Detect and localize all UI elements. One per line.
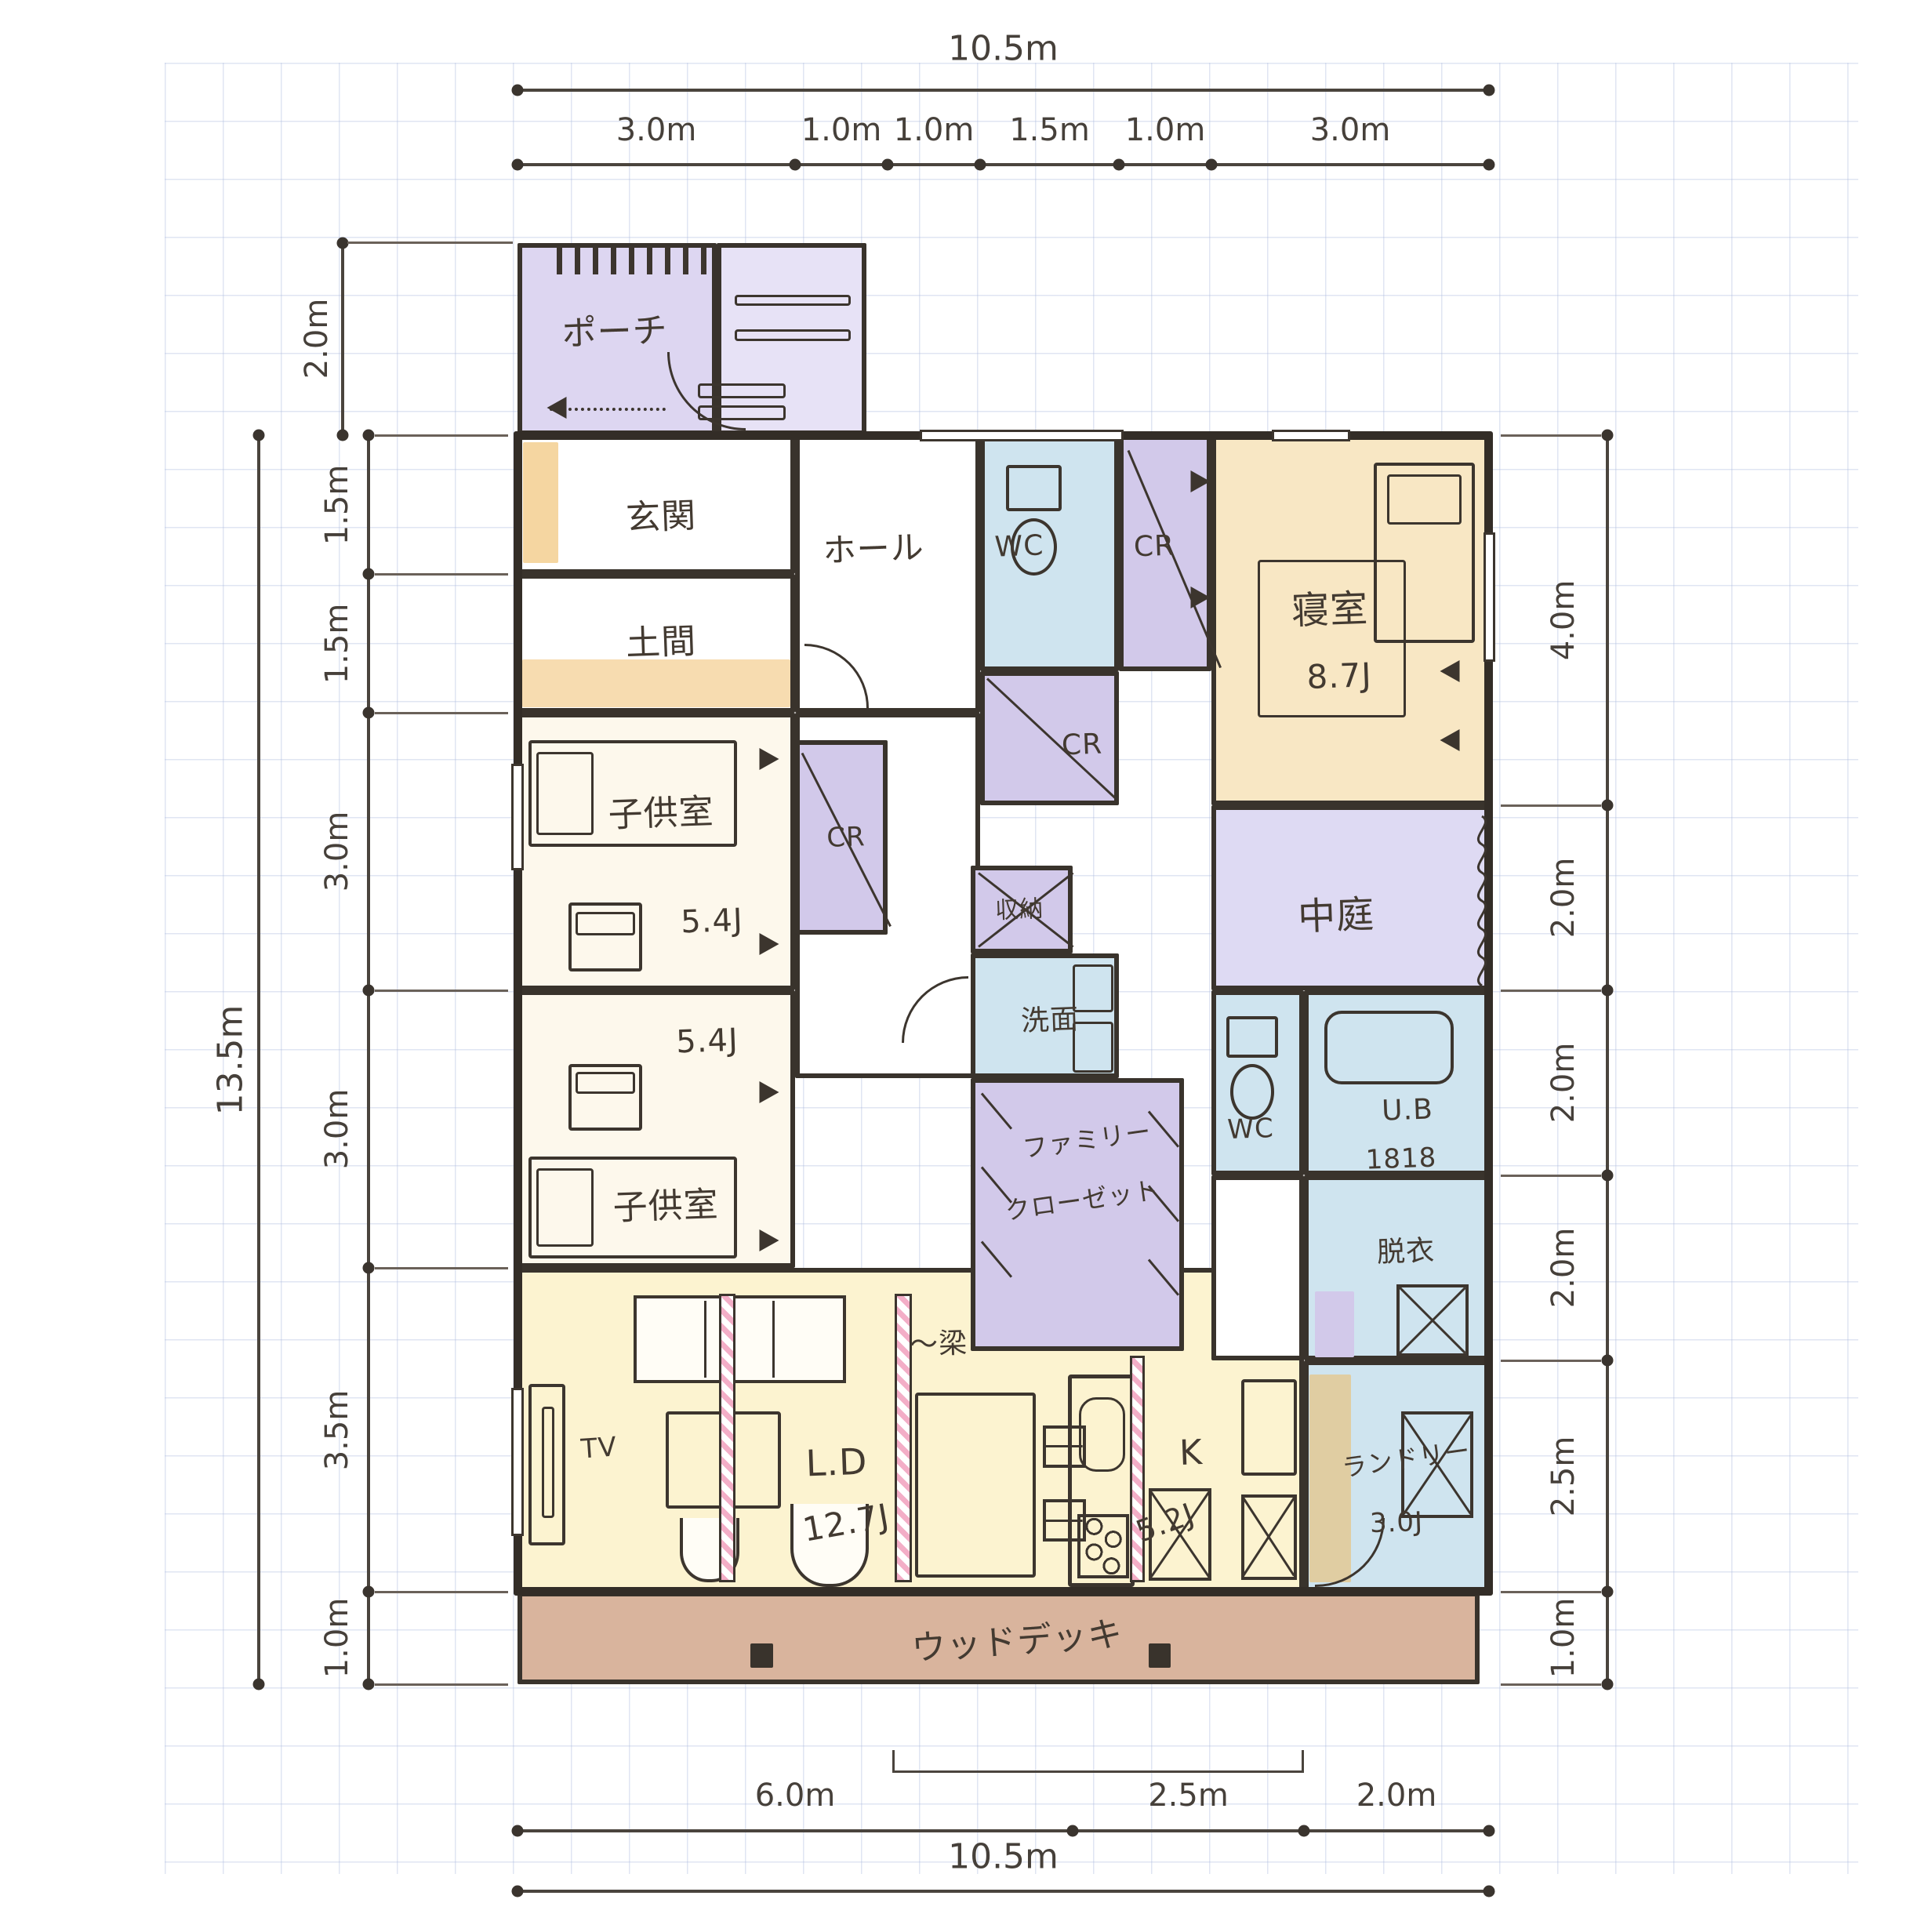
dim-tick — [512, 1825, 524, 1837]
mark-dline-69 — [550, 408, 666, 411]
dim-label: 2.0m — [299, 299, 335, 379]
dim-tick — [1067, 1825, 1079, 1837]
room-label-20: 脱衣 — [1376, 1228, 1436, 1271]
dim-line-h — [517, 1829, 1489, 1832]
dim-stub — [1501, 434, 1601, 437]
window-mark-icon — [759, 933, 779, 955]
room-label-2: ホール — [823, 521, 925, 572]
porch-dim-stub — [347, 241, 513, 244]
mark-win-7 — [511, 1388, 523, 1536]
mark-rect-39 — [542, 1407, 555, 1518]
window-mark-icon — [1190, 470, 1210, 492]
dim-tick — [363, 707, 375, 719]
dim-label: 1.0m — [894, 112, 975, 148]
room-label-17: WC — [1226, 1113, 1274, 1146]
dim-tick — [1206, 159, 1218, 171]
mark-comb-66 — [557, 246, 712, 274]
dim-line-v — [1606, 435, 1609, 1684]
mark-fill-77 — [522, 659, 790, 707]
dim-label: 13.5m — [211, 1004, 251, 1115]
dim-tick — [512, 1886, 524, 1897]
dim-tick — [363, 1679, 375, 1690]
room-label-18: U.B — [1382, 1094, 1434, 1128]
dim-tick — [882, 159, 894, 171]
dim-line-v — [367, 435, 370, 1684]
room-label-22: 子供室 — [612, 1176, 719, 1230]
mark-round-44 — [1079, 1397, 1125, 1471]
dim-tick — [363, 568, 375, 580]
dim-tick — [363, 1586, 375, 1598]
mark-oval-27 — [1230, 1064, 1275, 1120]
floor-plan: ©madree ポーチ玄関ホールWCCR寝室8.7J土間CR子供室5.4JCR収… — [0, 0, 1932, 1932]
mark-fill-30 — [1315, 1291, 1354, 1358]
mark-win-6 — [511, 764, 523, 870]
window-mark-icon — [547, 397, 566, 419]
room-label-23: 〜梁 — [909, 1320, 968, 1364]
dim-label: 3.0m — [616, 112, 697, 148]
mark-rect-26 — [1226, 1016, 1278, 1058]
mark-xbox-29 — [1396, 1284, 1469, 1356]
dim-tick — [253, 430, 265, 441]
mark-fill-79 — [1149, 1643, 1171, 1668]
room-label-24: TV — [579, 1432, 618, 1465]
dim-label: 1.5m — [1009, 112, 1090, 148]
mark-fill-76 — [523, 442, 558, 562]
dim-line-h — [517, 89, 1489, 92]
dim-line-h — [517, 1890, 1489, 1893]
room-label-8: CR — [1061, 728, 1103, 762]
mark-rect-13 — [536, 752, 594, 835]
dim-tick — [790, 159, 801, 171]
mark-post-49 — [719, 1294, 735, 1582]
dim-label: 6.0m — [755, 1778, 836, 1814]
dim-stub — [1501, 804, 1601, 807]
dim-tick — [1602, 1679, 1614, 1690]
dim-tick — [512, 85, 524, 96]
mark-rect-19 — [536, 1168, 594, 1247]
dim-label: 10.5m — [948, 1837, 1059, 1877]
dim-label: 1.5m — [319, 603, 355, 684]
dim-line-v — [257, 435, 260, 1684]
sofa-cushion-line — [704, 1301, 706, 1378]
room-label-4: CR — [1133, 529, 1175, 563]
room-label-1: 玄関 — [625, 488, 697, 540]
deck-bracket — [892, 1770, 1304, 1773]
dim-stub — [1501, 1175, 1601, 1177]
mark-rect-40 — [915, 1393, 1035, 1578]
dim-label: 4.0m — [1545, 580, 1582, 661]
room-label-11: CR — [826, 821, 866, 854]
dim-stub — [375, 1683, 508, 1686]
dim-stub — [1501, 1683, 1601, 1686]
mark-rect-47 — [1241, 1379, 1297, 1476]
room-label-12: 収納 — [994, 889, 1044, 925]
open-edge-wavy — [1472, 815, 1492, 986]
dim-stub — [375, 990, 508, 992]
room-label-5: 寝室 — [1291, 578, 1369, 635]
dim-stub — [1501, 1591, 1601, 1593]
mark-stove-45 — [1077, 1514, 1129, 1579]
window-mark-icon — [759, 748, 779, 770]
dim-label: 3.0m — [319, 812, 355, 892]
room-label-10: 5.4J — [680, 902, 743, 940]
room-label-6: 8.7J — [1306, 655, 1372, 696]
room-label-3: WC — [993, 529, 1044, 563]
dim-tick — [1483, 85, 1495, 96]
dim-tick — [1298, 1825, 1310, 1837]
dim-stub — [375, 573, 508, 576]
room-label-14: 中庭 — [1297, 883, 1375, 940]
dim-stub — [375, 1267, 508, 1269]
mark-win-3 — [1272, 430, 1350, 441]
room-label-27: K — [1178, 1433, 1204, 1473]
dim-tick — [1602, 985, 1614, 997]
window-mark-icon — [1440, 729, 1460, 751]
dim-tick — [1602, 1586, 1614, 1598]
mark-rect-71 — [735, 295, 851, 306]
dim-label: 3.0m — [1310, 112, 1391, 148]
dim-tick — [1483, 1825, 1495, 1837]
window-mark-icon — [759, 1229, 779, 1251]
porch-dim-line — [341, 243, 344, 435]
dim-label: 2.0m — [1545, 1043, 1582, 1124]
room-passage — [1211, 1175, 1304, 1360]
dim-tick — [1602, 800, 1614, 812]
dim-tick — [253, 1679, 265, 1690]
room-label-9: 子供室 — [607, 783, 714, 837]
mark-rect-52 — [1073, 964, 1113, 1012]
dim-label: 2.0m — [1545, 1228, 1582, 1309]
sofa-cushion-line — [772, 1301, 775, 1378]
mark-rect-15 — [576, 912, 635, 936]
dim-line-h — [517, 163, 1489, 166]
mark-win-5 — [920, 430, 1124, 441]
mark-rect-72 — [735, 329, 851, 340]
dim-tick — [363, 985, 375, 997]
dim-stub — [375, 712, 508, 714]
mark-rect-24 — [1006, 465, 1062, 511]
dim-label: 1.0m — [319, 1598, 355, 1679]
window-mark-icon — [1440, 660, 1460, 682]
dim-stub — [1501, 990, 1601, 992]
dim-stub — [375, 434, 508, 437]
dim-label: 3.0m — [319, 1089, 355, 1170]
room-label-25: L.D — [805, 1440, 869, 1484]
mark-xbox-48 — [1241, 1494, 1297, 1580]
mark-rect-1 — [1387, 474, 1461, 525]
dim-label: 10.5m — [948, 29, 1059, 69]
dim-tick — [337, 430, 349, 441]
dim-label: 2.5m — [1148, 1778, 1229, 1814]
dim-label: 2.0m — [1356, 1778, 1437, 1814]
room-label-13: 洗面 — [1020, 997, 1080, 1040]
dim-label: 1.5m — [319, 464, 355, 545]
deck-bracket-end — [892, 1750, 895, 1770]
room-label-7: 土間 — [625, 612, 697, 665]
dim-tick — [1113, 159, 1125, 171]
mark-fill-78 — [750, 1643, 772, 1668]
room-label-19: 1818 — [1365, 1142, 1437, 1175]
mark-win-4 — [1483, 532, 1495, 662]
dim-tick — [363, 430, 375, 441]
room-label-21: 5.4J — [675, 1022, 739, 1061]
dim-stub — [1501, 1360, 1601, 1362]
dim-label: 1.0m — [1125, 112, 1206, 148]
dim-tick — [975, 159, 986, 171]
dim-label: 2.0m — [1545, 858, 1582, 939]
deck-bracket-end — [1302, 1750, 1304, 1770]
dim-label: 2.5m — [1545, 1436, 1582, 1516]
dim-tick — [1483, 1886, 1495, 1897]
dim-tick — [363, 1262, 375, 1274]
dim-tick — [1483, 159, 1495, 171]
dim-tick — [1602, 430, 1614, 441]
dim-label: 1.0m — [1545, 1598, 1582, 1679]
dim-label: 3.5m — [319, 1389, 355, 1470]
mark-rect-21 — [576, 1072, 635, 1094]
room-label-30: 3.0J — [1369, 1505, 1423, 1538]
room-label-0: ポーチ — [561, 302, 668, 356]
dim-tick — [512, 159, 524, 171]
dim-label: 1.0m — [801, 112, 882, 148]
dim-tick — [1602, 1355, 1614, 1367]
dim-tick — [1602, 1170, 1614, 1182]
window-mark-icon — [759, 1081, 779, 1103]
mark-sofa-34 — [634, 1295, 846, 1383]
mark-round-28 — [1324, 1011, 1454, 1084]
dim-stub — [375, 1591, 508, 1593]
